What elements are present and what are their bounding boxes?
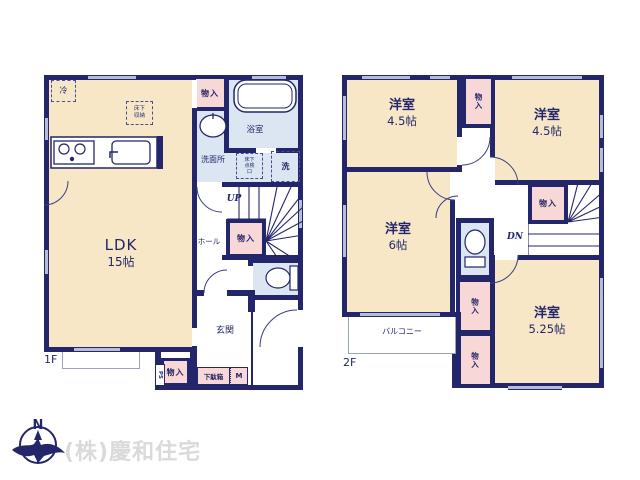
room-nw-name: 洋室 [352,98,452,114]
toilet-2f [459,228,491,274]
window-1f-left-upper [44,118,49,140]
balcony-label: バルコニー [352,327,452,337]
window-2f-left-lower [342,205,347,257]
porch-outline [62,352,140,369]
room-west-door-opening [450,172,455,200]
closet-2f-mid: 物入 [456,278,494,334]
bathroom-label: 浴室 [235,125,275,136]
window-2f-right-se [599,278,604,368]
room-nw-door-opening [457,137,462,165]
room-se-name: 洋室 [500,306,594,322]
room-nw-size: 4.5帖 [352,114,452,128]
laundry-label: 洗 [282,162,290,172]
compass-north-icon: N [8,412,68,474]
closet-2f-north-label: 物入 [473,93,484,110]
meter-box-label: M [236,372,243,380]
underfloor-storage-label: 床下収納 [134,106,145,120]
washroom-door-opening [197,182,222,187]
room-ne-label: 洋室 4.5帖 [500,108,594,139]
room-se-label: 洋室 5.25帖 [500,306,594,337]
window-2f-left-upper [342,96,347,140]
closet-1f-stairs-label: 物入 [237,233,255,244]
laundry-box: 洗 [271,151,300,182]
closet-2f-stairs: 物入 [528,183,568,224]
room-nw-label: 洋室 4.5帖 [352,98,452,129]
stairs-up-label: UP [221,194,247,205]
kitchen-counter-wall [157,136,163,169]
fridge-box: 冷 [51,80,76,102]
washbasin [196,110,230,140]
room-ne-name: 洋室 [500,108,594,124]
closet-2f-mid-label: 物入 [470,298,481,315]
floorplan-canvas: 物入 冷 床下収納 床下点検口 [0,0,640,480]
entrance-step-line [251,300,253,385]
wall-entrance-top-a [192,290,204,296]
ldk-opening-bottom [192,328,197,346]
floor1-label: 1F [44,353,68,367]
window-2f-right-ne-b [599,148,604,172]
wall-right-lower-1f [298,347,303,390]
shoe-box-label: 下駄箱 [204,371,224,381]
closet-1f-south-label: 物入 [167,367,185,378]
closet-1f-north: 物入 [192,75,228,111]
room-se-size: 5.25帖 [500,322,594,336]
closet-1f-stairs: 物入 [226,219,266,258]
window-2f-top-ne [512,75,582,80]
pipe-space: PS [155,364,165,386]
room-west-name: 洋室 [348,222,448,238]
room-west-size: 6帖 [348,238,448,252]
pipe-space-label: PS [157,371,163,379]
meter-box: M [230,367,248,385]
closet-2f-south: 物入 [456,332,494,388]
stairs-dn-label: DN [502,232,528,243]
window-1f-top-ldk [88,75,136,80]
room-ne-door-opening [490,157,495,185]
wall-ext-mid-1f [190,352,197,390]
toilet-door-opening-1f [248,266,253,290]
closet-2f-north: 物入 [462,75,495,128]
room-se-door-opening [495,255,518,260]
closet-2f-stairs-label: 物入 [539,198,557,209]
window-2f-top-small [430,75,450,80]
ldk-opening-top [192,80,197,108]
toilet-1f [264,261,300,295]
shoe-box: 下駄箱 [197,367,230,385]
window-2f-top-nw [362,75,410,80]
bathtub [232,78,298,114]
closet-1f-south: 物入 [161,358,190,386]
room-ne-size: 4.5帖 [500,124,594,138]
fridge-label: 冷 [60,86,68,96]
kitchen-counter [50,136,158,169]
underfloor-hatch-box: 床下点検口 [236,153,263,179]
window-2f-bottom-se [508,385,562,390]
washroom-label: 洗面所 [192,155,234,165]
room-ldk [44,75,197,352]
entrance-label: 玄関 [203,326,247,337]
ldk-label: LDK 15帖 [81,236,161,270]
ldk-name: LDK [81,236,161,255]
closet-1f-north-label: 物入 [201,88,219,99]
underfloor-hatch-label: 床下点検口 [243,157,256,176]
window-2f-right-ne-a [599,115,604,138]
ldk-size: 15帖 [81,255,161,270]
window-1f-left-lower [44,250,49,274]
closet-2f-south-label: 物入 [470,352,481,369]
room-west-label: 洋室 6帖 [348,222,448,253]
company-watermark: (株)慶和住宅 [64,434,201,466]
underfloor-storage-box: 床下収納 [126,101,153,125]
hall-label: ホール [194,237,224,246]
floor2-label: 2F [343,356,367,370]
